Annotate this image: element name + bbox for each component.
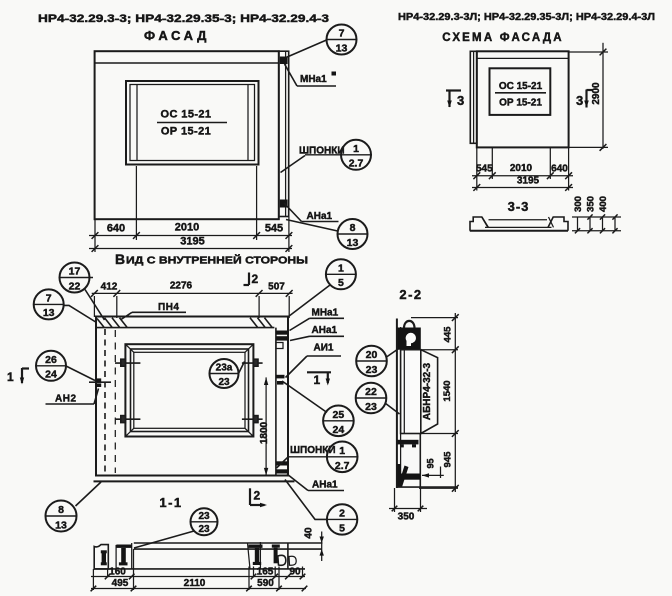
svg-text:ОР 15-21: ОР 15-21: [161, 126, 211, 138]
svg-text:350: 350: [586, 196, 597, 212]
svg-text:АИ1: АИ1: [314, 343, 334, 354]
svg-text:7: 7: [339, 28, 345, 40]
svg-text:2110: 2110: [184, 578, 206, 589]
svg-text:АН2: АН2: [55, 394, 77, 405]
svg-text:2: 2: [339, 508, 345, 520]
svg-text:1-1: 1-1: [159, 495, 182, 510]
svg-text:24: 24: [333, 424, 345, 436]
svg-text:445: 445: [442, 326, 453, 343]
svg-text:В: В: [115, 251, 125, 267]
svg-text:1: 1: [7, 370, 14, 384]
svg-text:1540: 1540: [442, 380, 453, 401]
svg-text:МНа1: МНа1: [312, 308, 339, 319]
svg-text:160: 160: [109, 567, 126, 578]
svg-text:3: 3: [576, 93, 583, 108]
svg-text:545: 545: [476, 164, 493, 175]
svg-text:24: 24: [45, 369, 57, 381]
svg-text:13: 13: [43, 307, 55, 319]
svg-text:ОС 15-21: ОС 15-21: [499, 81, 543, 92]
svg-text:40: 40: [304, 527, 315, 539]
svg-text:2276: 2276: [170, 281, 193, 292]
svg-text:ПН4: ПН4: [158, 302, 179, 313]
svg-text:НР4-32.29.3-3Л; НР4-32.29.35-3: НР4-32.29.3-3Л; НР4-32.29.35-3Л; НР4-32.…: [398, 12, 655, 23]
svg-text:7: 7: [46, 293, 52, 305]
svg-text:АБНР4-32-3: АБНР4-32-3: [422, 362, 433, 420]
svg-text:22: 22: [69, 280, 81, 292]
svg-text:945: 945: [442, 451, 453, 468]
svg-text:3195: 3195: [180, 236, 204, 248]
svg-text:ИД С ВНУТРЕННЕЙ СТОРОНЫ: ИД С ВНУТРЕННЕЙ СТОРОНЫ: [126, 254, 308, 267]
svg-text:3-3: 3-3: [508, 199, 530, 214]
svg-text:590: 590: [257, 578, 274, 589]
svg-text:3195: 3195: [517, 176, 540, 187]
svg-text:8: 8: [350, 222, 356, 234]
svg-text:13: 13: [347, 237, 359, 249]
svg-text:412: 412: [101, 282, 118, 293]
svg-text:23: 23: [198, 511, 210, 522]
svg-text:АНа1: АНа1: [307, 211, 333, 222]
svg-text:ОР 15-21: ОР 15-21: [499, 98, 542, 109]
svg-text:640: 640: [551, 164, 568, 175]
svg-text:5: 5: [338, 277, 344, 289]
svg-text:1800: 1800: [259, 421, 270, 444]
svg-text:23: 23: [365, 401, 377, 413]
svg-text:13: 13: [336, 42, 348, 54]
svg-text:23: 23: [218, 377, 230, 388]
svg-text:300: 300: [573, 196, 584, 212]
svg-text:23: 23: [366, 364, 378, 376]
svg-text:НР4-32.29.3-3; НР4-32.29.35-3;: НР4-32.29.3-3; НР4-32.29.35-3; НР4-32.29…: [38, 13, 329, 25]
svg-text:13: 13: [55, 519, 67, 531]
svg-text:1: 1: [339, 445, 345, 457]
svg-text:МНа1: МНа1: [300, 74, 327, 85]
svg-text:2.7: 2.7: [335, 460, 350, 472]
svg-text:ФАСАД: ФАСАД: [144, 28, 210, 43]
svg-text:545: 545: [265, 223, 283, 235]
svg-text:ОС 15-21: ОС 15-21: [161, 109, 212, 121]
svg-text:1: 1: [314, 373, 321, 387]
svg-text:2.7: 2.7: [349, 158, 364, 170]
svg-text:2010: 2010: [510, 163, 533, 174]
svg-text:22: 22: [365, 386, 377, 398]
svg-text:400: 400: [598, 196, 609, 212]
svg-text:23: 23: [198, 524, 210, 535]
svg-text:1: 1: [338, 263, 344, 275]
svg-text:26: 26: [45, 354, 57, 366]
svg-text:495: 495: [112, 578, 129, 589]
svg-text:90: 90: [289, 567, 301, 578]
svg-text:8: 8: [58, 504, 64, 516]
svg-text:2-2: 2-2: [399, 287, 422, 302]
svg-text:СХЕМА ФАСАДА: СХЕМА ФАСАДА: [442, 32, 563, 44]
svg-text:23а: 23а: [216, 363, 233, 374]
svg-text:1: 1: [353, 143, 359, 155]
svg-text:507: 507: [268, 282, 285, 293]
svg-text:17: 17: [69, 266, 81, 278]
svg-text:20: 20: [366, 349, 378, 361]
svg-text:АНа1: АНа1: [312, 480, 338, 491]
svg-text:95: 95: [426, 458, 436, 468]
svg-text:2: 2: [252, 272, 259, 286]
svg-text:2900: 2900: [591, 82, 602, 105]
svg-text:165: 165: [257, 567, 274, 578]
svg-text:25: 25: [333, 409, 345, 421]
svg-text:640: 640: [107, 223, 125, 235]
svg-text:350: 350: [398, 512, 415, 523]
svg-text:АНа1: АНа1: [312, 325, 338, 336]
svg-text:2010: 2010: [175, 222, 199, 234]
svg-text:3: 3: [457, 93, 464, 108]
svg-text:2: 2: [254, 489, 261, 503]
svg-text:5: 5: [339, 522, 345, 534]
